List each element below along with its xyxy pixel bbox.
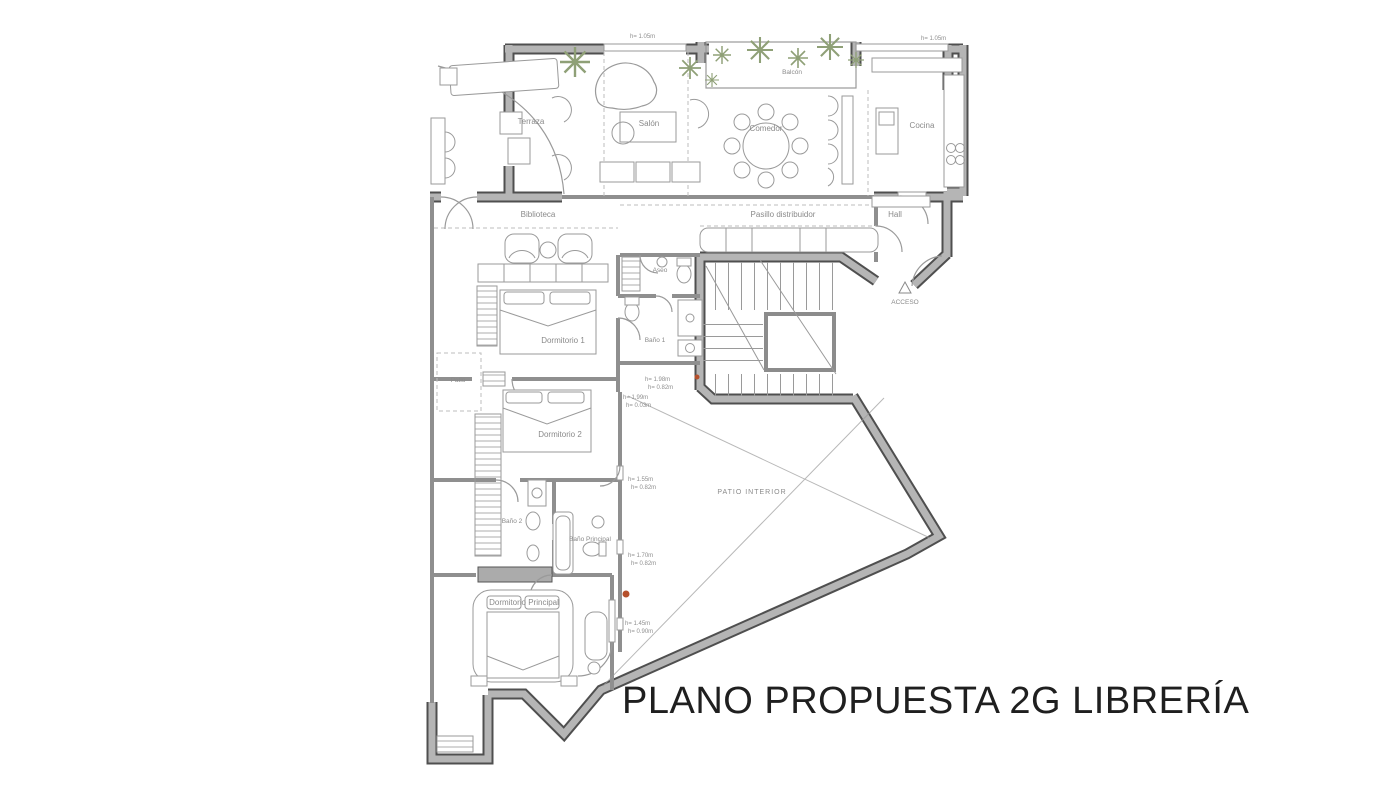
plant-icon [713, 46, 731, 64]
plant-icon [747, 37, 773, 63]
dim-5-line-2: h= 0.90m [628, 629, 653, 635]
plan-title: PLANO PROPUESTA 2G LIBRERÍA [622, 679, 1249, 722]
label-hall: Hall [888, 210, 902, 219]
boiler-marker-icon [623, 591, 630, 598]
plant-icon [788, 48, 808, 68]
floor-plan-page: Terraza Salón Balcón Comedor Cocina Bibl… [0, 0, 1400, 788]
label-dormitorio-principal: Dormitorio Principal [489, 598, 559, 607]
furniture-biblioteca [478, 234, 608, 282]
label-terraza: Terraza [518, 117, 545, 126]
label-salon: Salón [639, 119, 659, 128]
plant-icon [817, 34, 843, 60]
balcony [560, 34, 864, 88]
label-patio-interior: PATIO INTERIOR [717, 489, 786, 496]
label-patio: Patio [451, 377, 466, 384]
dim-3-line-1: h= 1.55m [628, 477, 653, 483]
outlet-marker-icon [695, 375, 700, 380]
fixtures-bano-principal [553, 512, 606, 574]
window-height-left: h= 1.05m [630, 34, 655, 40]
window-height-right: h= 1.05m [921, 36, 946, 42]
label-pasillo: Pasillo distribuidor [751, 210, 816, 219]
dim-1-line-1: h= 1.98m [645, 377, 670, 383]
label-bano-principal: Baño Principal [569, 536, 611, 543]
label-balcon: Balcón [782, 69, 802, 76]
plant-icon [705, 73, 719, 87]
dim-4-line-1: h= 1.70m [628, 553, 653, 559]
fixtures-aseo [622, 257, 691, 291]
furniture-pasillo-bench [700, 228, 878, 252]
fixtures-bano1 [625, 297, 702, 356]
floor-plan-drawing: Terraza Salón Balcón Comedor Cocina Bibl… [0, 0, 1400, 788]
dim-2-line-1: h= 1.99m [623, 395, 648, 401]
staircase [703, 260, 836, 396]
label-bano2: Baño 2 [502, 518, 523, 525]
label-bano1: Baño 1 [645, 337, 666, 344]
dim-4-line-2: h= 0.82m [631, 561, 656, 567]
plant-icon [848, 52, 864, 68]
access-symbol [899, 282, 911, 293]
label-cocina: Cocina [910, 121, 935, 130]
dim-2-line-2: h= 0.03m [626, 403, 651, 409]
radiator-bottom-left [437, 736, 473, 752]
label-dormitorio2: Dormitorio 2 [538, 430, 582, 439]
dim-3-line-2: h= 0.82m [631, 485, 656, 491]
label-dormitorio1: Dormitorio 1 [541, 336, 585, 345]
label-biblioteca: Biblioteca [521, 210, 556, 219]
label-aseo: Aseo [653, 267, 668, 274]
label-acceso: ACCESO [891, 299, 918, 306]
elevator-shaft [766, 314, 834, 370]
dim-5-line-1: h= 1.45m [625, 621, 650, 627]
furniture-cocina [872, 58, 965, 207]
wardrobe-block [478, 567, 552, 582]
plant-icon [560, 47, 590, 77]
fixtures-bano2 [526, 480, 546, 561]
furniture-salon [552, 63, 709, 182]
furniture-comedor [724, 96, 853, 188]
label-comedor: Comedor [750, 124, 783, 133]
access-triangle-icon [899, 282, 911, 293]
dim-1-line-2: h= 0.82m [648, 385, 673, 391]
